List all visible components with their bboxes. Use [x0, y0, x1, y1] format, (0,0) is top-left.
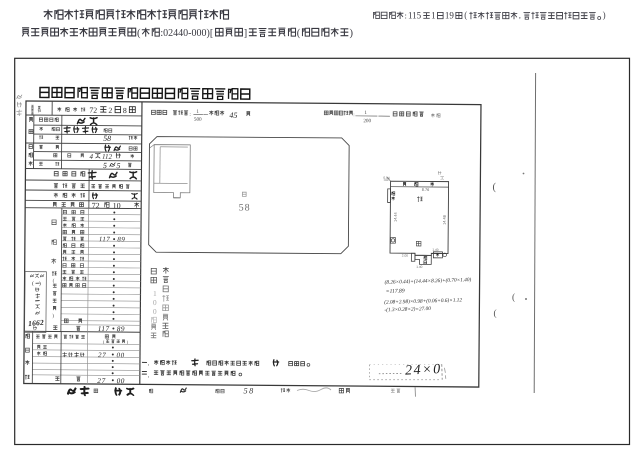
svg-text:24×0: 24×0 [405, 362, 442, 379]
svg-text:(: ( [137, 28, 141, 39]
svg-text:45: 45 [229, 111, 237, 120]
svg-text:0: 0 [153, 298, 157, 307]
svg-text:89: 89 [117, 325, 125, 333]
svg-text:14.48: 14.48 [443, 215, 447, 225]
svg-text:): ) [603, 10, 606, 20]
svg-text:]: ] [244, 28, 247, 39]
svg-text:(: ( [494, 308, 497, 319]
svg-text:72: 72 [89, 106, 97, 115]
svg-text:19: 19 [445, 11, 455, 21]
svg-text:27: 27 [97, 377, 106, 385]
svg-text:58: 58 [239, 202, 251, 213]
svg-text:58: 58 [103, 134, 111, 143]
svg-text:27: 27 [98, 351, 107, 359]
svg-text:2: 2 [108, 106, 112, 115]
svg-text:200: 200 [363, 118, 371, 124]
svg-text::: : [405, 10, 407, 20]
svg-text:(: ( [32, 280, 34, 287]
svg-text:(: ( [512, 292, 515, 303]
svg-text:5: 5 [103, 161, 107, 170]
svg-text:-(1.3×0.28×2)=27.00: -(1.3×0.28×2)=27.00 [384, 305, 431, 313]
svg-text:1662: 1662 [28, 318, 45, 329]
svg-text:,: , [519, 11, 521, 20]
svg-text:1.40: 1.40 [416, 265, 422, 269]
svg-text:117: 117 [98, 325, 110, 333]
svg-text:0: 0 [153, 307, 157, 316]
svg-text:(: ( [297, 28, 301, 39]
svg-text:115: 115 [408, 11, 422, 21]
svg-text:1.40: 1.40 [432, 248, 438, 252]
svg-text:00: 00 [116, 351, 124, 359]
svg-text:8: 8 [123, 106, 127, 115]
svg-text:00: 00 [117, 377, 125, 385]
svg-text:5: 5 [116, 161, 120, 170]
svg-text:89: 89 [117, 236, 125, 243]
svg-text:58: 58 [244, 387, 255, 396]
svg-text:72: 72 [92, 201, 100, 210]
svg-text:2.00: 2.00 [402, 254, 408, 258]
svg-text:1: 1 [364, 110, 367, 116]
svg-text:117: 117 [99, 236, 111, 243]
svg-text::02440-000)[: :02440-000)[ [160, 28, 213, 39]
svg-text:=117.89: =117.89 [386, 288, 405, 295]
svg-text:14.44: 14.44 [394, 212, 398, 222]
svg-text:0.44: 0.44 [383, 176, 389, 180]
svg-text:1: 1 [153, 289, 157, 298]
svg-text:): ) [350, 28, 354, 39]
svg-text:1: 1 [196, 109, 199, 115]
svg-text:): ) [39, 280, 41, 287]
svg-text:(: ( [493, 182, 497, 193]
svg-text:8.76: 8.76 [422, 188, 429, 192]
svg-text:10: 10 [113, 201, 121, 210]
svg-text:4: 4 [90, 153, 94, 161]
svg-text:500: 500 [194, 117, 202, 123]
svg-text:112: 112 [102, 153, 113, 161]
svg-text:(: ( [464, 10, 467, 20]
svg-text:1: 1 [431, 11, 436, 21]
